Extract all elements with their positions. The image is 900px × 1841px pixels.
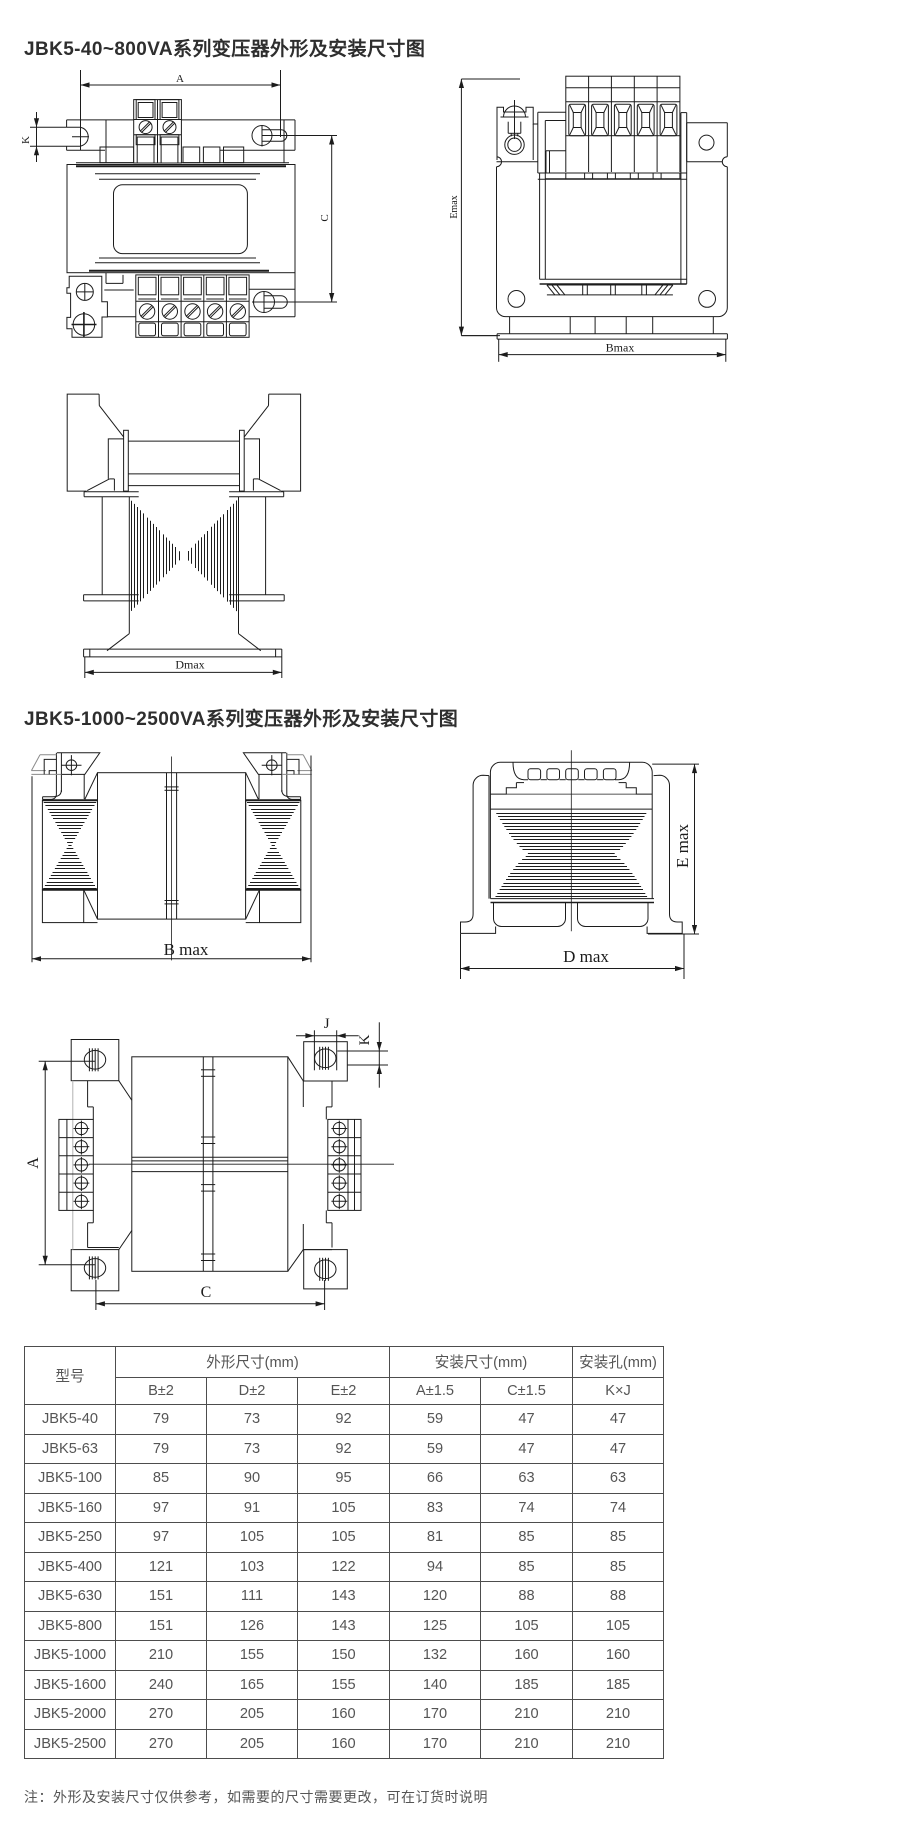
svg-text:J: J xyxy=(324,1016,330,1032)
svg-text:D max: D max xyxy=(563,947,609,966)
svg-text:C: C xyxy=(319,214,331,221)
svg-text:Bmax: Bmax xyxy=(606,341,635,355)
svg-text:A: A xyxy=(25,1157,42,1169)
svg-text:C: C xyxy=(201,1284,212,1301)
svg-text:Emax: Emax xyxy=(449,195,460,218)
svg-text:E max: E max xyxy=(673,824,692,868)
svg-text:K: K xyxy=(357,1034,373,1045)
svg-text:A: A xyxy=(176,73,184,85)
svg-text:B max: B max xyxy=(164,940,209,959)
svg-text:Dmax: Dmax xyxy=(175,658,204,672)
svg-text:K: K xyxy=(20,136,32,144)
